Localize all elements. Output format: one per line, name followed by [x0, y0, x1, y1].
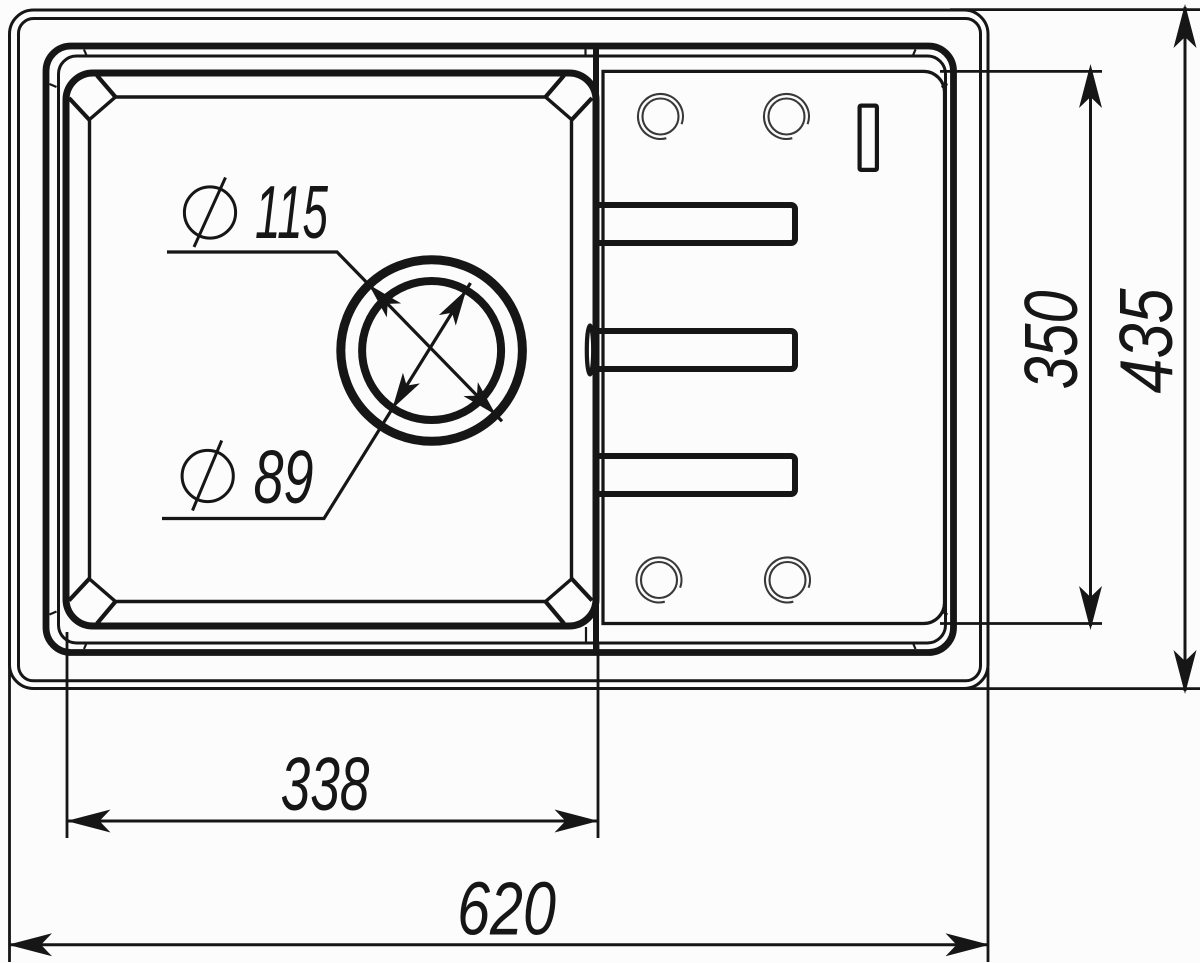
svg-text:620: 620: [457, 868, 556, 951]
svg-text:338: 338: [281, 742, 370, 826]
svg-text:435: 435: [1104, 288, 1188, 394]
svg-text:115: 115: [255, 172, 328, 255]
svg-text:89: 89: [253, 435, 313, 519]
svg-text:350: 350: [1010, 290, 1093, 389]
